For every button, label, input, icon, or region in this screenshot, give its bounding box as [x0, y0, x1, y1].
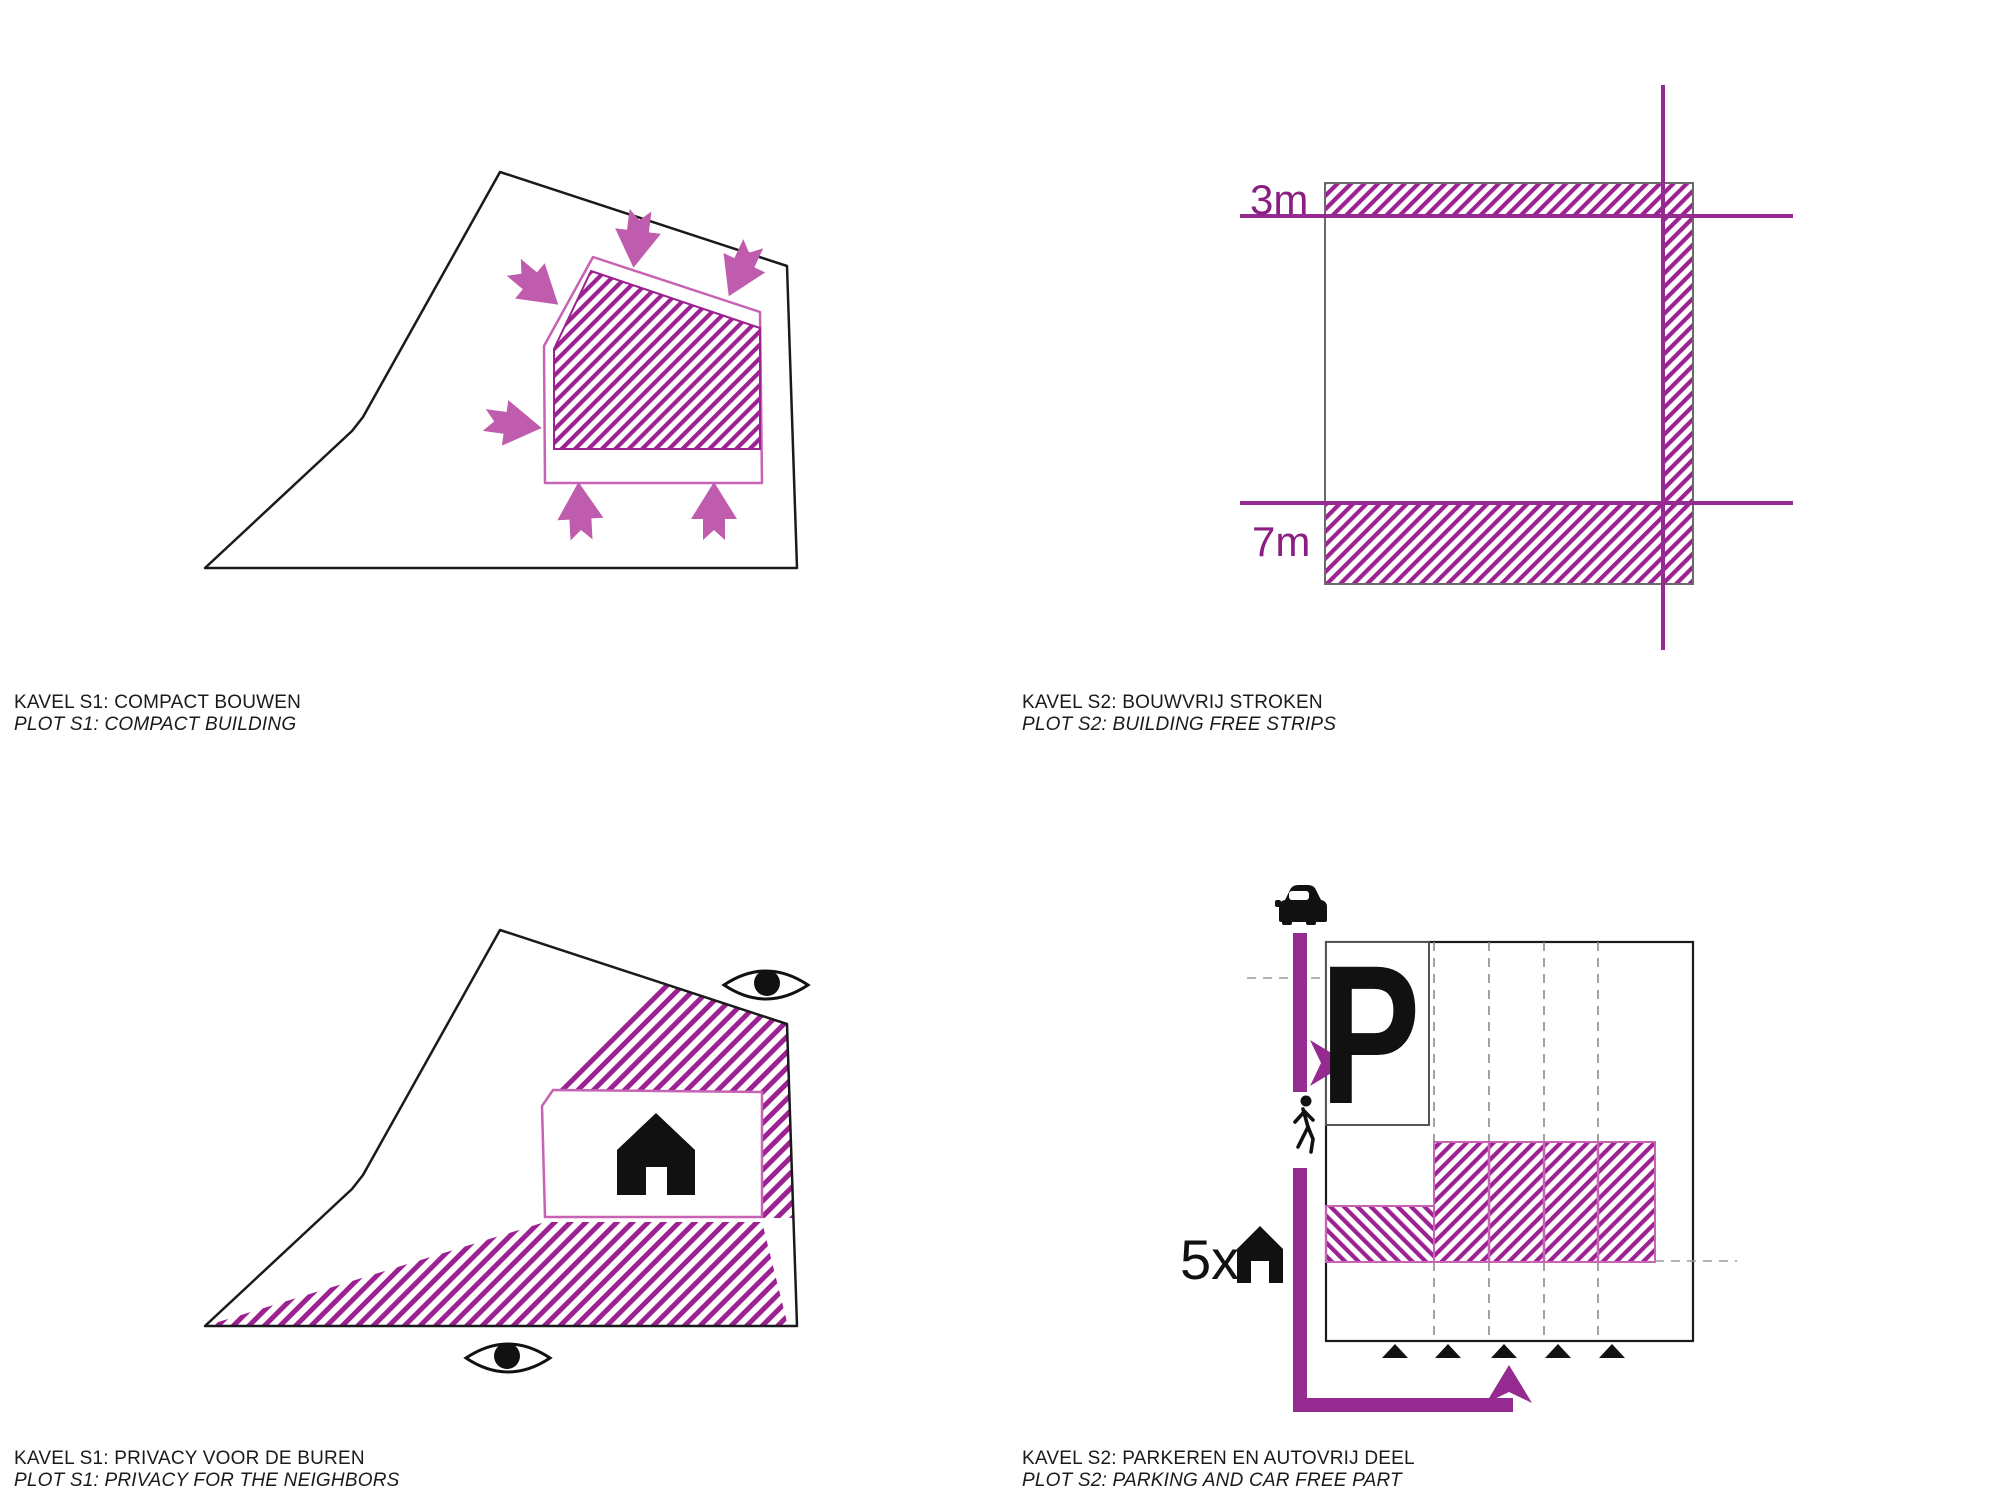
diagram-privacy-neighbors	[205, 930, 808, 1372]
car-icon	[1275, 885, 1327, 925]
caption-subtitle: PLOT S1: COMPACT BUILDING	[14, 714, 301, 736]
caption-parking-car-free: KAVEL S2: PARKEREN EN AUTOVRIJ DEEL PLOT…	[1022, 1448, 1415, 1492]
diagram-parking-car-free: 5x P	[1180, 885, 1737, 1412]
caption-title: KAVEL S1: COMPACT BOUWEN	[14, 692, 301, 714]
diagram-building-free-strips: 3m 7m	[1240, 85, 1793, 650]
eye-icon	[724, 970, 808, 999]
car-free-hatch-left	[1326, 1206, 1434, 1262]
caption-title: KAVEL S2: BOUWVRIJ STROKEN	[1022, 692, 1336, 714]
caption-title: KAVEL S2: PARKEREN EN AUTOVRIJ DEEL	[1022, 1448, 1415, 1470]
diagram-canvas: 3m 7m	[0, 0, 2000, 1500]
caption-subtitle: PLOT S1: PRIVACY FOR THE NEIGHBORS	[14, 1470, 399, 1492]
pedestrian-icon	[1295, 1096, 1313, 1153]
access-point-triangles	[1382, 1344, 1625, 1358]
arrow-down-left-icon	[708, 234, 774, 306]
caption-privacy-neighbors: KAVEL S1: PRIVACY VOOR DE BUREN PLOT S1:…	[14, 1448, 399, 1492]
caption-title: KAVEL S1: PRIVACY VOOR DE BUREN	[14, 1448, 399, 1470]
strip-bottom-7m-hatch	[1325, 503, 1693, 584]
strip-right-hatch	[1663, 216, 1693, 503]
plot-rules-diagram-sheet: 3m 7m	[0, 0, 2000, 1500]
diagram-compact-building	[205, 172, 797, 568]
7m-dimension-label: 7m	[1252, 518, 1310, 565]
arrow-up-icon	[556, 481, 605, 541]
eye-icon	[466, 1343, 550, 1372]
3m-dimension-label: 3m	[1250, 176, 1308, 223]
caption-building-free-strips: KAVEL S2: BOUWVRIJ STROKEN PLOT S2: BUIL…	[1022, 692, 1336, 736]
caption-subtitle: PLOT S2: PARKING AND CAR FREE PART	[1022, 1470, 1415, 1492]
arrow-up-icon	[691, 482, 737, 540]
privacy-ground-hatch	[205, 1222, 788, 1326]
caption-subtitle: PLOT S2: BUILDING FREE STRIPS	[1022, 714, 1336, 736]
compact-building-hatch	[554, 271, 760, 449]
houses-count-label: 5x	[1180, 1228, 1239, 1291]
strip-top-3m-hatch	[1325, 183, 1693, 216]
arrow-right-icon	[481, 397, 545, 451]
house-icon	[1237, 1226, 1283, 1283]
parking-letter: P	[1320, 925, 1420, 1146]
caption-compact-building: KAVEL S1: COMPACT BOUWEN PLOT S1: COMPAC…	[14, 692, 301, 736]
